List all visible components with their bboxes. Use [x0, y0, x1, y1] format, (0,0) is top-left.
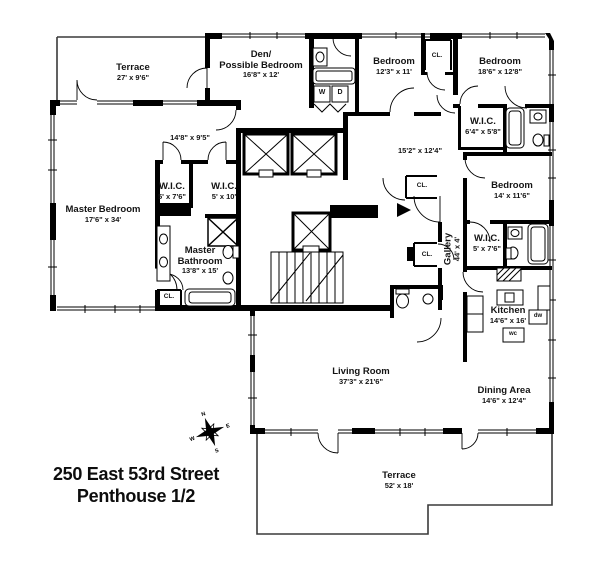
room-label-bedroom2: Bedroom 18'6" x 12'8" [478, 57, 522, 76]
terrace-outlines [57, 37, 552, 534]
room-label-kitchen: Kitchen 14'6" x 16' [490, 306, 526, 325]
compass-rose-icon: N E S W [182, 405, 238, 462]
svg-text:W: W [189, 435, 197, 443]
elevator-icon [292, 134, 336, 177]
svg-text:E: E [225, 423, 231, 430]
room-label-terrace-top: Terrace 27' x 9'6" [116, 63, 150, 82]
room-label-wic-master-left: W.I.C. 5' x 7'6" [158, 182, 186, 201]
svg-text:N: N [201, 411, 207, 418]
closet-label-gallery: CL. [422, 251, 432, 258]
washer-label: W [319, 89, 326, 97]
svg-text:S: S [214, 448, 220, 455]
room-label-living-room: Living Room 37'3" x 21'6" [332, 367, 390, 386]
floorplan-canvas: N E S W Terrace 27' x 9'6" Den/ Possible… [0, 0, 600, 576]
room-label-bedroom1: Bedroom 12'3" x 11' [373, 57, 415, 76]
entry-arrow-icon [397, 203, 411, 217]
room-label-foyer: 15'2" x 12'4" [398, 147, 442, 155]
room-label-den: Den/ Possible Bedroom 16'8" x 12' [219, 50, 302, 80]
closet-label-master: CL. [164, 293, 174, 300]
room-label-wic-master-right: W.I.C. 5' x 10' [211, 182, 237, 201]
stairs-icon [271, 252, 343, 303]
floorplan-title: 250 East 53rd Street Penthouse 1/2 [53, 464, 219, 507]
service-elevator-icon [293, 213, 330, 252]
room-label-hall: 14'8" x 9'5" [170, 134, 210, 142]
room-label-gallery: Gallery 44' x 4' [444, 233, 463, 265]
closet-label-bedroom1: CL. [432, 52, 442, 59]
dryer-label: D [337, 89, 342, 97]
shower-icon [208, 218, 238, 246]
room-label-bedroom3: Bedroom 14' x 11'6" [491, 181, 533, 200]
room-label-wic-bedroom2: W.I.C. 6'4" x 5'8" [465, 117, 501, 136]
room-label-dining-area: Dining Area 14'6" x 12'4" [478, 386, 531, 405]
room-label-master-bedroom: Master Bedroom 17'6" x 34' [66, 205, 141, 224]
closet-label-foyer: CL. [417, 182, 427, 189]
dishwasher-label: dw [534, 313, 542, 320]
wine-cooler-label: wc [509, 331, 517, 338]
room-label-wic-bedroom3: W.I.C. 5' x 7'6" [473, 234, 501, 253]
room-label-master-bathroom: Master Bathroom 13'8" x 15' [178, 246, 223, 276]
room-label-terrace-bottom: Terrace 52' x 18' [382, 471, 416, 490]
elevator-icon [244, 134, 288, 177]
